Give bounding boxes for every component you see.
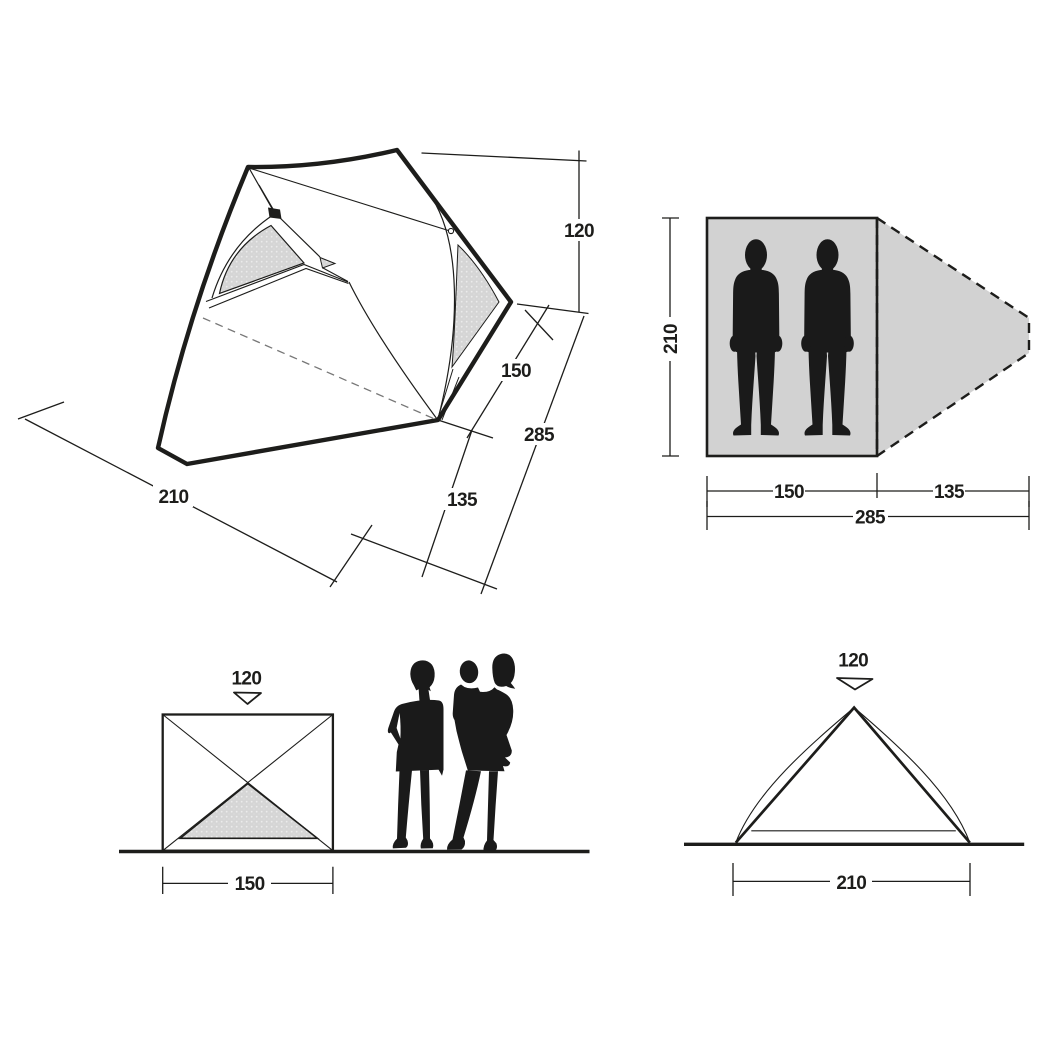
svg-text:150: 150 [774, 482, 804, 503]
svg-text:210: 210 [836, 873, 866, 894]
svg-text:285: 285 [855, 507, 886, 528]
svg-text:150: 150 [501, 361, 531, 382]
svg-text:120: 120 [838, 650, 868, 671]
svg-text:210: 210 [159, 487, 189, 508]
svg-text:120: 120 [231, 669, 261, 690]
svg-text:150: 150 [235, 874, 265, 895]
svg-text:285: 285 [524, 425, 555, 446]
svg-text:210: 210 [661, 324, 682, 354]
svg-text:120: 120 [564, 221, 594, 242]
svg-text:135: 135 [447, 490, 478, 511]
svg-text:135: 135 [934, 482, 965, 503]
